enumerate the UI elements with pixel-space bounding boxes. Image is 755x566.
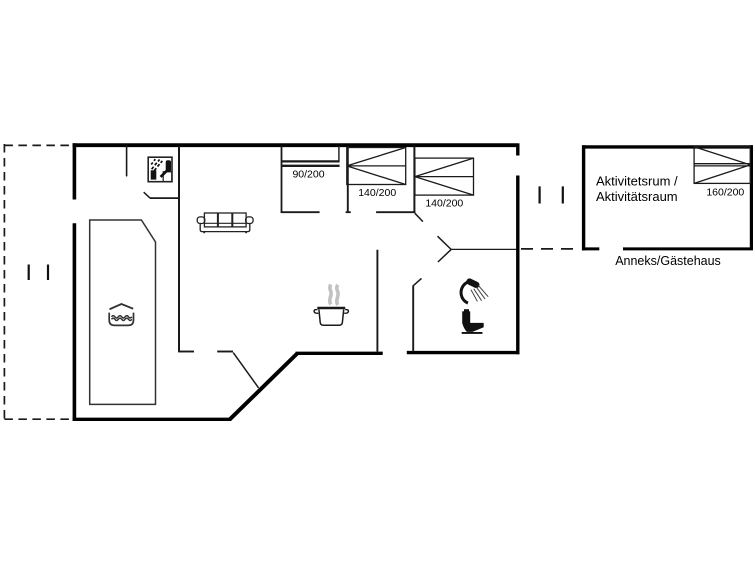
svg-text:Aktivitetsrum /: Aktivitetsrum /	[596, 174, 678, 189]
svg-text:Anneks/Gästehaus: Anneks/Gästehaus	[615, 254, 721, 268]
svg-text:Aktivitätsraum: Aktivitätsraum	[596, 189, 678, 204]
svg-text:90/200: 90/200	[292, 169, 324, 181]
svg-text:140/200: 140/200	[425, 198, 463, 210]
svg-text:160/200: 160/200	[706, 186, 744, 198]
svg-text:140/200: 140/200	[358, 187, 396, 199]
